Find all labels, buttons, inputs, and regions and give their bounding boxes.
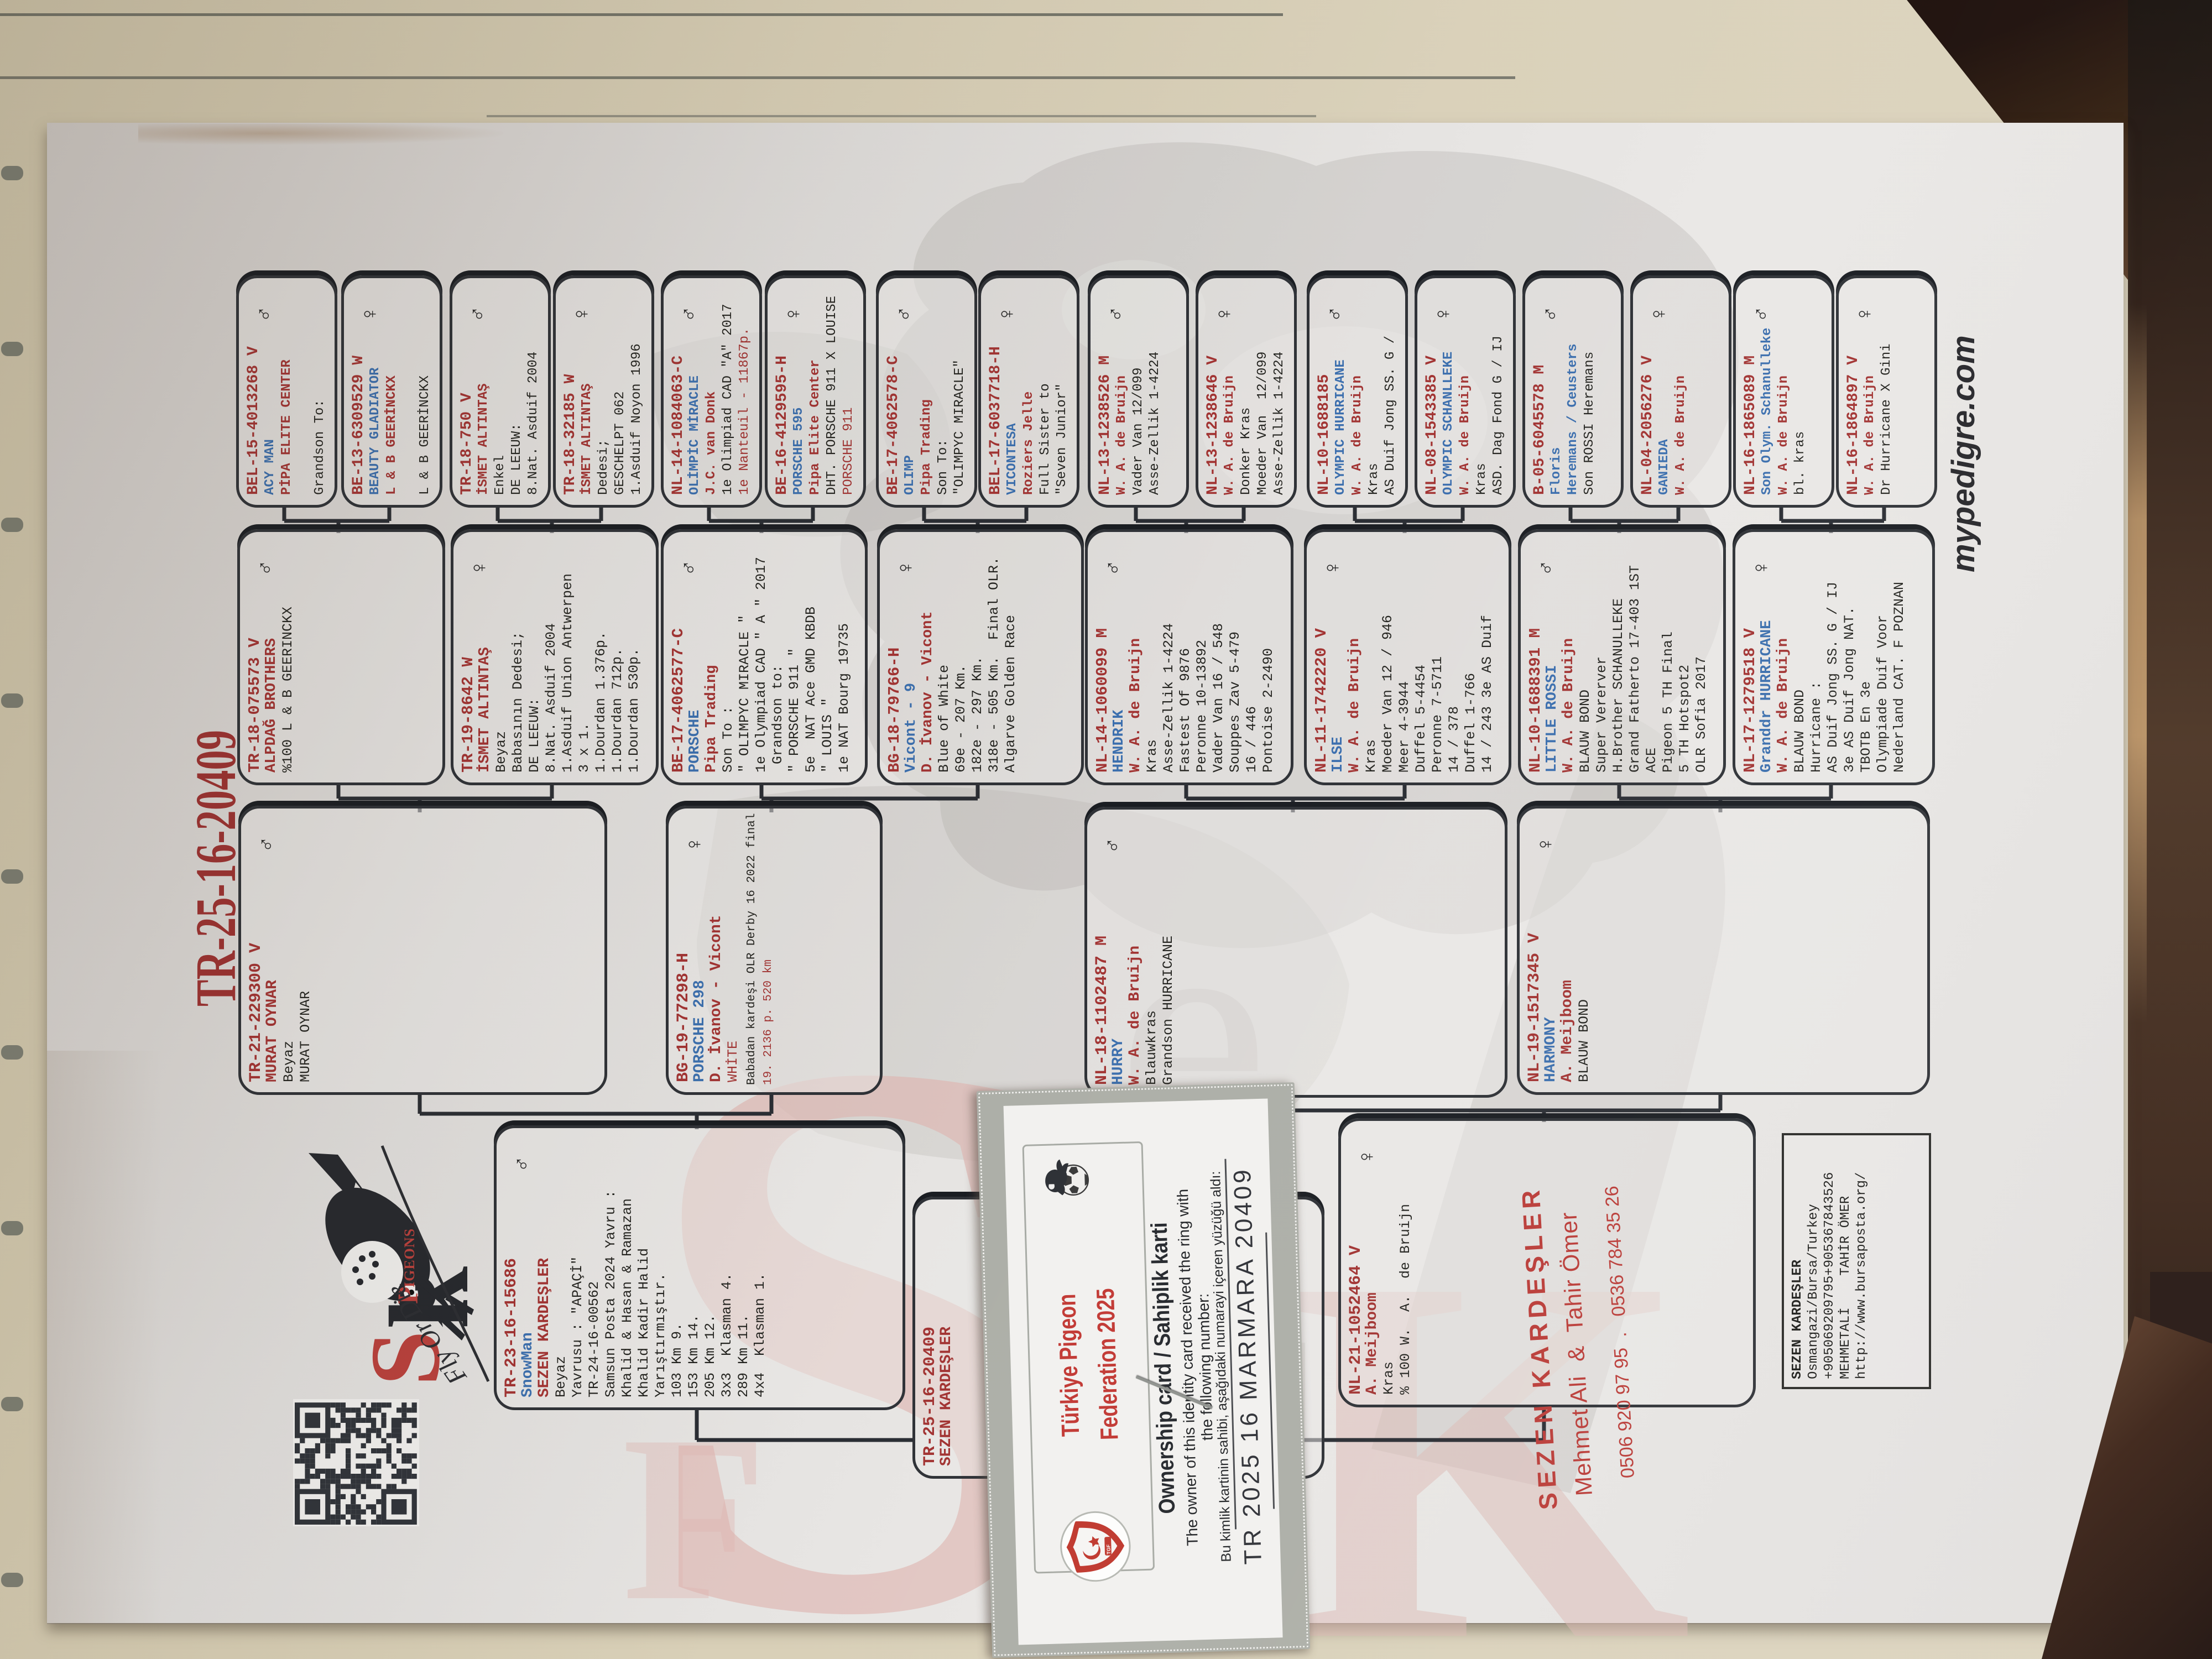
svg-text:TGF: TGF	[1105, 1544, 1112, 1554]
svg-text:IGEONS: IGEONS	[401, 1228, 418, 1287]
